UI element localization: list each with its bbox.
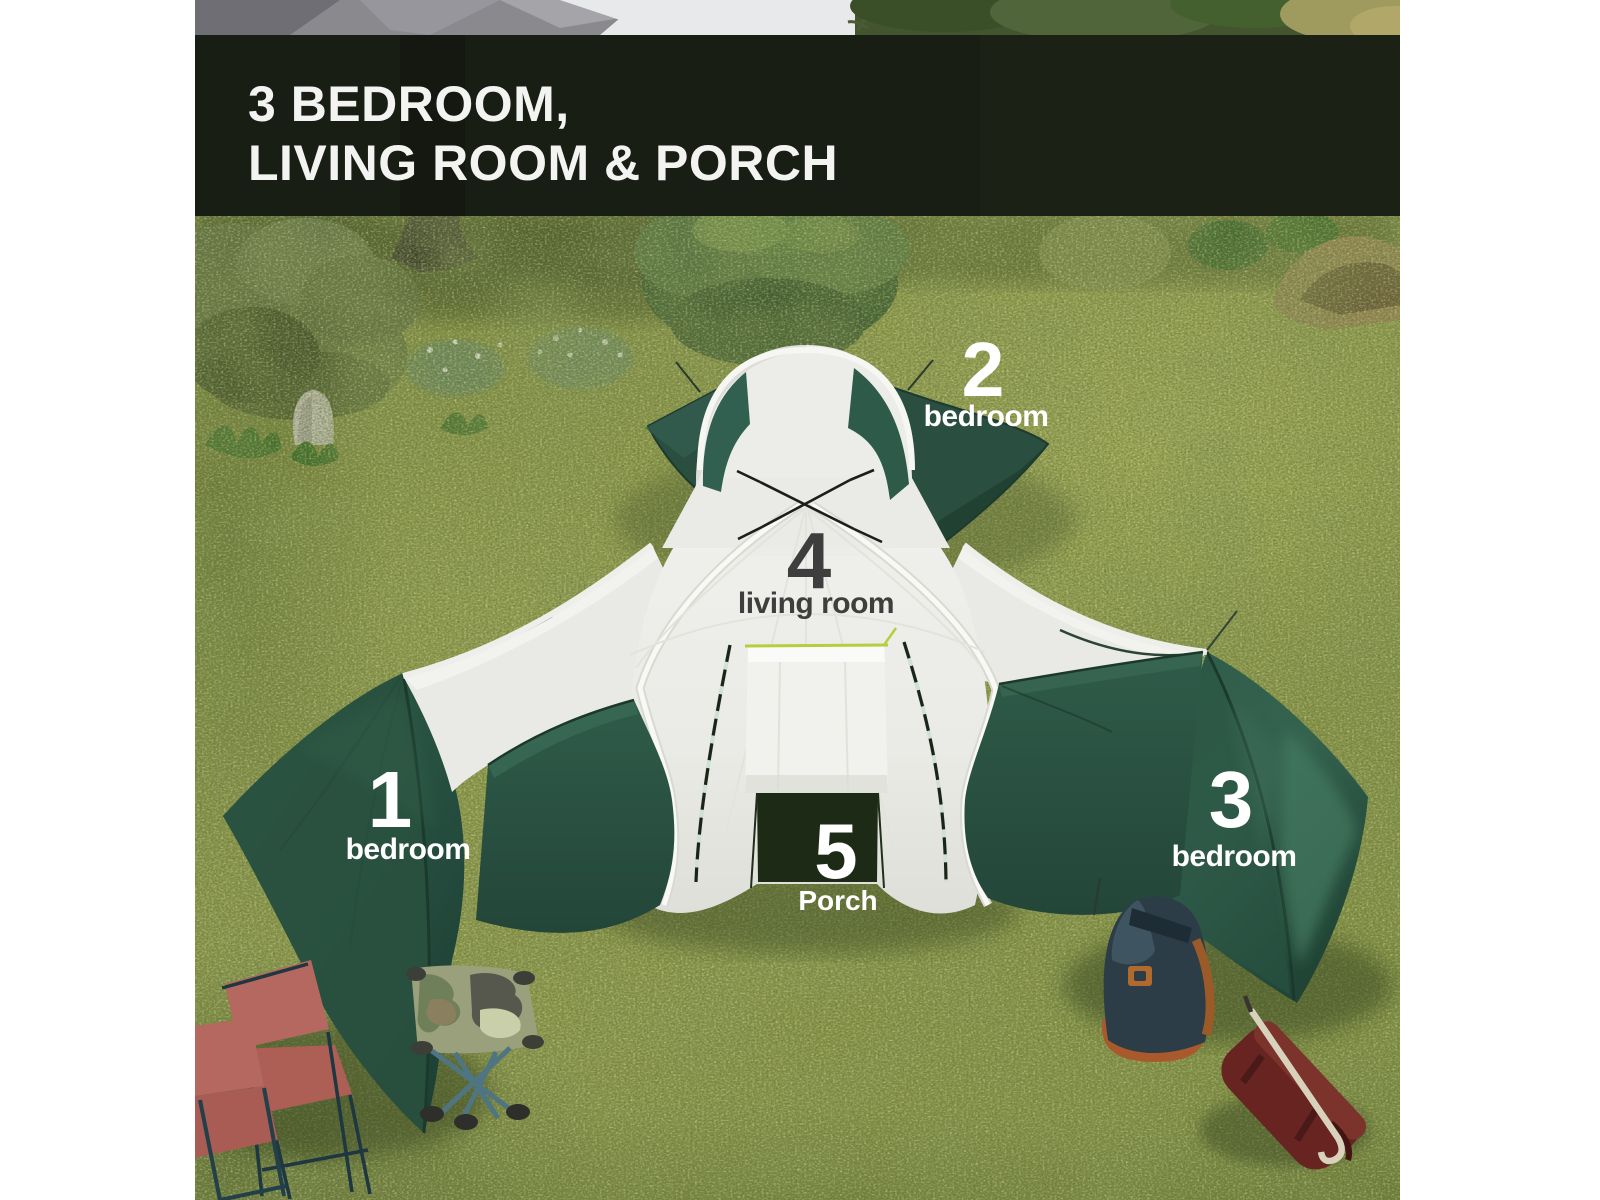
svg-text:bedroom: bedroom xyxy=(1172,840,1297,873)
svg-text:living room: living room xyxy=(738,587,894,620)
svg-text:LIVING ROOM & PORCH: LIVING ROOM & PORCH xyxy=(248,135,838,191)
svg-text:3 BEDROOM,: 3 BEDROOM, xyxy=(248,76,570,132)
svg-text:3: 3 xyxy=(1209,755,1254,844)
svg-text:bedroom: bedroom xyxy=(924,400,1049,433)
svg-text:5: 5 xyxy=(814,807,857,895)
svg-text:Porch: Porch xyxy=(798,885,877,916)
svg-text:bedroom: bedroom xyxy=(346,833,471,866)
svg-text:1: 1 xyxy=(368,755,413,844)
